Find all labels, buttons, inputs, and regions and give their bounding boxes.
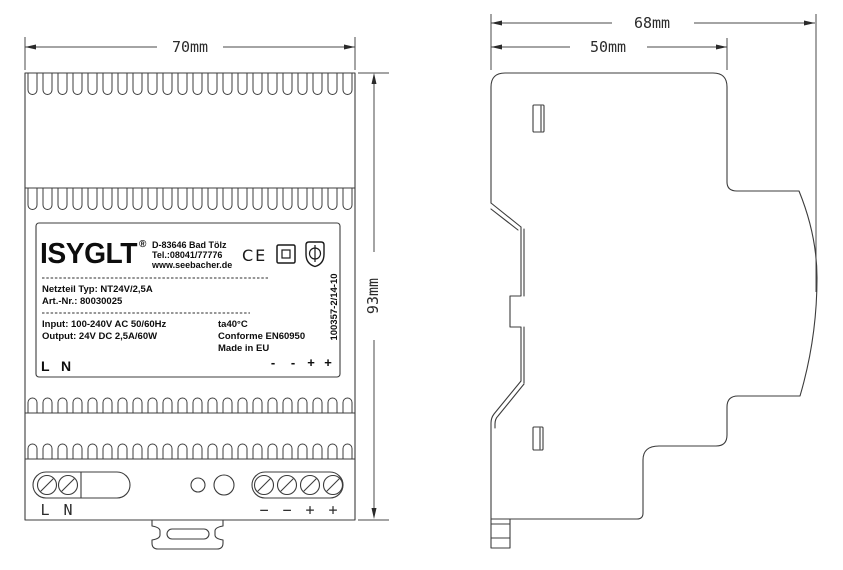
label-polarity-plus-1: + — [307, 355, 315, 370]
safety-mark-icon — [306, 242, 324, 267]
din-power-supply-drawing: 70mm 93mm ISYGLT ® D-83646 Bad Tölz Tel.… — [0, 0, 843, 570]
class-ii-icon — [277, 245, 295, 263]
terminal-label-l: L — [40, 501, 49, 519]
label-address-line2: Tel.:08041/77776 — [152, 250, 222, 260]
large-circle-opening — [214, 475, 234, 495]
label-address-line3: www.seebacher.de — [151, 260, 232, 270]
terminal-polarity-minus-2: − — [282, 501, 291, 519]
side-total-depth-label: 68mm — [634, 14, 670, 32]
terminal-polarity-plus-2: + — [328, 501, 337, 519]
side-view: 68mm 50mm — [491, 14, 817, 548]
label-artnr-line: Art.-Nr.: 80030025 — [42, 296, 123, 307]
label-terminal-l: L — [41, 358, 50, 374]
side-body-depth-label: 50mm — [590, 38, 626, 56]
terminal-label-n: N — [63, 501, 72, 519]
label-polarity-minus-1: - — [271, 355, 275, 370]
vent-row-top-1 — [25, 73, 355, 98]
serial-number-vertical: 100357-2/14-10 — [329, 273, 340, 340]
vent-row-top-2 — [25, 188, 355, 213]
din-rail-clip-tab — [152, 520, 223, 549]
small-circle-opening — [191, 478, 205, 492]
label-input-line: Input: 100-240V AC 50/60Hz — [42, 319, 166, 330]
vent-row-bottom-1 — [25, 395, 355, 413]
front-width-dimension: 70mm — [25, 37, 355, 70]
brand-logo: ISYGLT — [40, 238, 138, 270]
side-profile-outline — [491, 73, 817, 548]
screw-terminal — [301, 476, 320, 495]
registered-trademark-mark: ® — [139, 239, 147, 250]
side-slot-lower — [533, 427, 543, 450]
front-view: 70mm 93mm ISYGLT ® D-83646 Bad Tölz Tel.… — [25, 37, 389, 549]
label-polarity-plus-2: + — [324, 355, 332, 370]
label-output-line: Output: 24V DC 2,5A/60W — [42, 331, 157, 342]
label-temp-line: ta40°C — [218, 319, 248, 330]
terminal-polarity-plus-1: + — [305, 501, 314, 519]
screw-terminal — [324, 476, 343, 495]
rail-recess-chamfer — [491, 203, 521, 230]
vent-row-bottom-2 — [25, 441, 355, 459]
clip-slot — [167, 529, 209, 539]
terminal-polarity-minus-1: − — [259, 501, 268, 519]
label-origin-line: Made in EU — [218, 343, 269, 354]
front-height-dimension-label: 93mm — [364, 278, 382, 314]
screw-terminal — [255, 476, 274, 495]
side-body-depth-dimension: 50mm — [491, 38, 727, 70]
rail-spring-hook — [491, 381, 524, 519]
label-conformity-line: Conforme EN60950 — [218, 331, 305, 342]
ce-mark: CE — [242, 246, 267, 265]
screw-terminal — [38, 476, 57, 495]
input-terminal-block: L N — [33, 472, 130, 519]
label-address-line1: D-83646 Bad Tölz — [152, 240, 227, 250]
label-type-line: Netzteil Typ: NT24V/2,5A — [42, 284, 153, 295]
rail-recess-wall — [510, 227, 524, 383]
output-terminal-block: − − + + — [252, 472, 343, 519]
side-slot-upper — [533, 105, 544, 132]
technical-drawing-page: 70mm 93mm ISYGLT ® D-83646 Bad Tölz Tel.… — [0, 0, 843, 570]
screw-terminal — [278, 476, 297, 495]
rating-label-plate: ISYGLT ® D-83646 Bad Tölz Tel.:08041/777… — [36, 223, 340, 377]
screw-terminal — [59, 476, 78, 495]
label-polarity-minus-2: - — [291, 355, 295, 370]
label-terminal-n: N — [61, 358, 71, 374]
side-clip-foot — [491, 519, 510, 548]
front-height-dimension: 93mm — [358, 73, 389, 520]
front-width-dimension-label: 70mm — [172, 38, 208, 56]
side-total-depth-dimension: 68mm — [491, 14, 816, 292]
